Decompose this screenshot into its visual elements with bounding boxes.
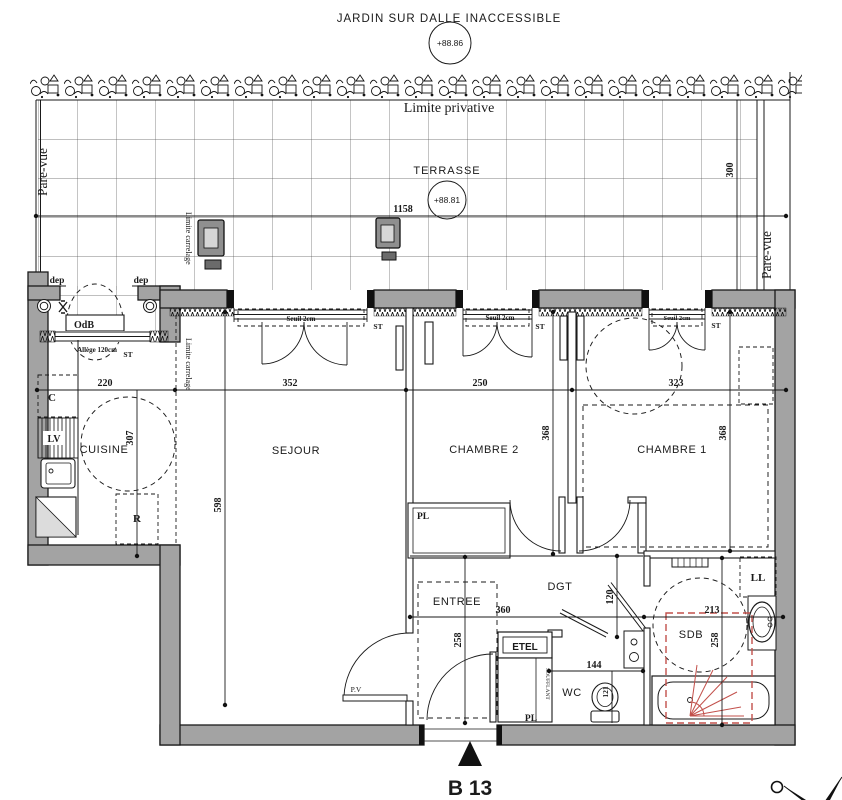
dim-sejour-depth: 598: [213, 498, 224, 513]
seuil-label-chambre2: Seuil 2cm: [486, 314, 515, 322]
dep-label-2: dep: [134, 276, 149, 286]
wall-chambre2-chambre1: [568, 312, 576, 503]
bottom-markers: B 13: [448, 741, 842, 800]
wardrobe-chambre1: [739, 347, 773, 404]
cupboard-label: C: [48, 392, 56, 404]
kitchen-sink: [41, 459, 75, 488]
dim-sdb-width: 213: [705, 605, 720, 616]
loggia-tiles-top: [60, 286, 138, 300]
wall-dgt-sdb: [644, 556, 650, 586]
dim-chambre1-width: 323: [669, 378, 684, 389]
room-label-sejour: SEJOUR: [272, 445, 320, 457]
allege-label: Allège 120cm: [77, 346, 117, 354]
st-label-chambre2: ST: [535, 322, 544, 331]
door-chambre1: [577, 497, 630, 553]
dim-terrace-depth: 300: [725, 163, 736, 178]
wall-chambre1-dgt: [638, 503, 646, 553]
radiator-chambre1: [577, 316, 584, 360]
pv-door-label: P.V: [351, 685, 362, 694]
dim-wc-offset: 121: [601, 686, 610, 698]
room-label-entree: ENTREE: [433, 596, 481, 608]
dim-dgt-offset: 120: [605, 590, 616, 605]
closet-chambre2: PL: [408, 503, 510, 558]
radiator-sejour: [396, 326, 403, 370]
plan-number: B 13: [448, 777, 492, 800]
pl-label-chambre2: PL: [417, 512, 429, 522]
room-label-dgt: DGT: [547, 581, 572, 593]
towel-radiator: [672, 558, 708, 567]
compass-west-icon: [772, 782, 783, 793]
terrace-tiles: [38, 100, 757, 290]
windows: Seuil 2cm ST Seuil 2cm ST Seuil 2cm ST: [234, 308, 721, 365]
dim-entree-depth: 258: [453, 633, 464, 648]
room-label-wc: WC: [562, 687, 582, 699]
door-wc-ajar: [560, 610, 608, 638]
bed-clearance: [583, 405, 768, 547]
dep-label-1: dep: [50, 276, 65, 286]
dim-sejour-width: 352: [283, 378, 298, 389]
chambre2: CHAMBRE 2 PL: [408, 444, 565, 558]
dishwasher-label: LV: [48, 434, 62, 445]
limite-carrelage-terrace-label: Limite carrelage: [184, 212, 193, 265]
sejour-window: Seuil 2cm ST: [234, 308, 383, 365]
entrance-door: [424, 652, 497, 741]
room-label-cuisine: CUISINE: [80, 444, 129, 456]
odb-label: OdB: [74, 320, 94, 331]
radiator-chambre2: [560, 316, 567, 360]
floorplan-drawing: JARDIN SUR DALLE INACCESSIBLE +88.86 Lim…: [0, 0, 842, 800]
wc: WC: [562, 631, 644, 722]
garden-level-value: +88.86: [437, 38, 464, 48]
seuil-label-chambre1: Seuil 2cm: [664, 315, 691, 322]
dim-cuisine-width: 220: [98, 378, 113, 389]
turning-circle-chambre1: [586, 318, 682, 414]
etel-label: ETEL: [512, 642, 538, 653]
room-label-sdb: SDB: [679, 629, 703, 641]
door-sejour-entree: P.V: [343, 633, 410, 701]
turning-circle-sdb: [653, 578, 747, 672]
st-label-chambre1: ST: [711, 321, 720, 330]
kitchen-corner-unit: [36, 497, 76, 537]
dim-cuisine-depth: 307: [125, 431, 136, 446]
vegetation-band: [30, 72, 802, 100]
pl-label-entree: PL: [525, 714, 537, 724]
dim-sdb-depth: 258: [710, 633, 721, 648]
wall-wc-sdb: [644, 628, 650, 725]
dim-wc-width: 144: [587, 660, 602, 671]
seuil-label-sejour: Seuil 2cm: [287, 315, 316, 323]
chambre1-window: Seuil 2cm ST: [649, 308, 721, 350]
floorplan-page: JARDIN SUR DALLE INACCESSIBLE +88.86 Lim…: [0, 0, 842, 800]
door-chambre2: [510, 497, 565, 553]
chambre2-window: Seuil 2cm ST: [463, 308, 545, 357]
sejour: SEJOUR P.V: [272, 445, 410, 701]
dim-chambre1-depth: 368: [718, 426, 729, 441]
bathtub: [652, 676, 775, 725]
room-label-chambre2: CHAMBRE 2: [449, 444, 519, 456]
ll-label: LL: [751, 572, 766, 584]
wall-sejour-entree: [406, 308, 413, 633]
dim-chambre2-depth: 368: [541, 426, 552, 441]
st-label-sejour: ST: [373, 322, 382, 331]
dim-terrace-width: 1158: [393, 204, 412, 215]
compass-rose: [772, 777, 842, 800]
etel-unit: ETEL SOUFFLANT PL: [498, 632, 552, 724]
dim-chambre2-width: 250: [473, 378, 488, 389]
entrance-arrow: [458, 741, 482, 766]
garden-title: JARDIN SUR DALLE INACCESSIBLE: [337, 13, 562, 25]
limite-carrelage-kitchen-label: Limite carrelage: [184, 338, 193, 391]
pare-vue-left-label: Pare-vue: [35, 148, 50, 196]
st-label-odb: ST: [123, 350, 132, 359]
pare-vue-right-label: Pare-vue: [759, 231, 774, 279]
room-label-chambre1: CHAMBRE 1: [637, 444, 707, 456]
garden-area: JARDIN SUR DALLE INACCESSIBLE +88.86: [30, 13, 802, 100]
fridge-label: R: [133, 513, 142, 525]
dim-hall-width: 360: [496, 605, 511, 616]
wc-handbasin: [624, 631, 644, 668]
terrace-label: TERRASSE: [413, 165, 480, 177]
chambre1: CHAMBRE 1: [577, 318, 773, 553]
limite-privative-label: Limite privative: [404, 101, 495, 116]
terrace-level-value: +88.81: [434, 195, 461, 205]
radiator-chambre2-west: [425, 322, 433, 364]
